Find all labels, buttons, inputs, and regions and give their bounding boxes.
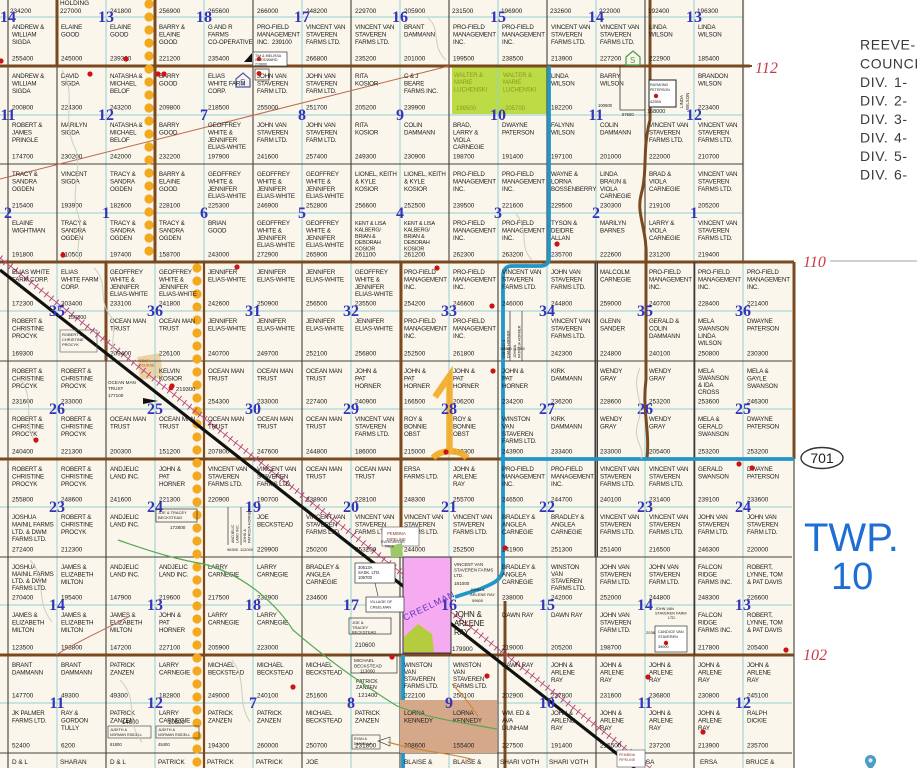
svg-text:JENNIFER: JENNIFER [355, 318, 385, 325]
svg-text:ARLENE: ARLENE [600, 669, 624, 676]
svg-text:FALCON: FALCON [698, 612, 722, 619]
svg-text:DIV.: DIV. [860, 130, 888, 146]
svg-text:205200: 205200 [698, 203, 720, 210]
svg-text:230800: 230800 [698, 693, 720, 700]
svg-text:KOSIOR: KOSIOR [355, 186, 379, 193]
svg-text:182600: 182600 [110, 203, 132, 210]
svg-text:226100: 226100 [159, 351, 181, 358]
svg-text:GERALD: GERALD [698, 466, 723, 473]
svg-text:WILSON: WILSON [551, 80, 575, 87]
svg-text:STAVEREN: STAVEREN [649, 473, 680, 480]
svg-text:PATERSON: PATERSON [747, 423, 779, 430]
svg-text:LUCHENSKI: LUCHENSKI [503, 87, 536, 93]
svg-text:251600: 251600 [306, 693, 328, 700]
svg-text:7: 7 [249, 695, 257, 712]
svg-text:BRADLEY &: BRADLEY & [551, 514, 585, 521]
svg-text:5: 5 [298, 205, 306, 222]
svg-text:CO-OPERATIVE: CO-OPERATIVE [208, 39, 253, 46]
svg-text:22: 22 [539, 499, 555, 516]
svg-text:172800: 172800 [170, 525, 186, 530]
svg-text:235200: 235200 [355, 56, 377, 63]
svg-text:DIV.: DIV. [860, 74, 888, 90]
svg-text:TRUST: TRUST [110, 423, 130, 430]
svg-text:WHITE FARM: WHITE FARM [61, 276, 98, 283]
svg-text:OCEAN MAN: OCEAN MAN [159, 416, 195, 423]
svg-text:ELIAS-WHITE: ELIAS-WHITE [306, 242, 344, 249]
svg-text:KENNEDY: KENNEDY [404, 717, 433, 724]
svg-text:FARMS LTD.: FARMS LTD. [404, 683, 439, 690]
svg-text:BONNIE: BONNIE [404, 423, 427, 430]
svg-text:GRAY: GRAY [600, 423, 616, 430]
svg-text:26: 26 [49, 401, 65, 418]
svg-text:9: 9 [396, 107, 404, 124]
svg-text:CARNEGIE: CARNEGIE [502, 529, 533, 536]
svg-text:WHITE &: WHITE & [257, 178, 283, 185]
svg-text:STAVEREN: STAVEREN [306, 521, 337, 528]
svg-text:ANDJELIC: ANDJELIC [110, 564, 139, 571]
svg-text:ELIAS-WHITE: ELIAS-WHITE [208, 193, 246, 200]
svg-text:OCEAN MAN: OCEAN MAN [306, 416, 342, 423]
svg-text:JOHN &: JOHN & [404, 368, 427, 375]
svg-text:198700: 198700 [453, 154, 475, 161]
svg-text:RITA: RITA [355, 73, 369, 80]
svg-text:4: 4 [396, 205, 404, 222]
svg-text:PRO-FIELD: PRO-FIELD [257, 24, 289, 31]
svg-text:ROBERT,: ROBERT, [747, 564, 773, 571]
svg-text:BECKSTEAD: BECKSTEAD [306, 669, 343, 676]
svg-text:HORNER: HORNER [355, 383, 382, 390]
svg-text:DIV.: DIV. [860, 93, 888, 109]
svg-text:FARMS LTD.: FARMS LTD. [698, 235, 733, 242]
svg-text:FARMS LTD.: FARMS LTD. [12, 585, 47, 592]
svg-text:BARRY: BARRY [159, 122, 179, 129]
svg-text:JAMES &: JAMES & [61, 564, 87, 571]
svg-text:222600: 222600 [600, 252, 622, 259]
svg-text:SIGDA: SIGDA [12, 39, 32, 46]
svg-text:WENDY: WENDY [649, 368, 671, 375]
svg-text:BLAISE &: BLAISE & [404, 759, 433, 766]
svg-text:LINDA: LINDA [679, 95, 684, 108]
svg-text:239100: 239100 [698, 497, 720, 504]
svg-text:KOSIOR: KOSIOR [404, 186, 428, 193]
svg-text:246300: 246300 [698, 547, 720, 554]
svg-text:TRACY &: TRACY & [110, 220, 137, 227]
svg-text:253200: 253200 [747, 449, 769, 456]
svg-text:242300: 242300 [551, 351, 573, 358]
svg-text:TRUST: TRUST [108, 386, 124, 391]
svg-text:JOHN VAN: JOHN VAN [600, 612, 630, 619]
svg-text:MANAGEMENT: MANAGEMENT [453, 227, 496, 234]
svg-text:263200: 263200 [502, 252, 524, 259]
svg-text:30: 30 [245, 401, 261, 418]
svg-text:RAYMOND: RAYMOND [650, 83, 669, 87]
svg-text:198700: 198700 [600, 645, 622, 652]
svg-text:272900: 272900 [257, 252, 279, 259]
svg-text:NATASHA &: NATASHA & [110, 122, 143, 129]
svg-text:PARK: PARK [385, 545, 395, 549]
svg-text:VINCENT VAN: VINCENT VAN [600, 24, 639, 31]
svg-text:7: 7 [200, 107, 208, 124]
svg-text:STAVEREN FARM: STAVEREN FARM [655, 612, 687, 616]
svg-text:121400: 121400 [358, 693, 377, 699]
svg-text:LYNNE, TOM: LYNNE, TOM [747, 619, 783, 626]
svg-text:SWANSON: SWANSON [698, 375, 729, 382]
svg-text:HORNER: HORNER [502, 383, 529, 390]
svg-text:265900: 265900 [306, 252, 328, 259]
svg-text:248300: 248300 [698, 595, 720, 602]
svg-text:110: 110 [803, 254, 826, 271]
svg-text:VINCENT VAN: VINCENT VAN [306, 514, 345, 521]
svg-text:AVA: AVA [502, 717, 514, 724]
svg-text:SIGDA: SIGDA [12, 88, 32, 95]
svg-text:174700: 174700 [12, 154, 34, 161]
svg-text:HORNER: HORNER [404, 383, 431, 390]
svg-text:168000: 168000 [647, 109, 665, 115]
svg-text:233000: 233000 [600, 449, 622, 456]
svg-text:106700: 106700 [358, 575, 373, 580]
svg-text:STAVEREN: STAVEREN [355, 31, 386, 38]
svg-text:STAVEREN: STAVEREN [502, 431, 533, 438]
svg-text:TWP.: TWP. [804, 516, 899, 560]
svg-text:217500: 217500 [208, 595, 230, 602]
svg-text:251700: 251700 [306, 105, 328, 112]
svg-text:266000: 266000 [257, 8, 279, 15]
svg-text:GORDON: GORDON [61, 717, 88, 724]
svg-text:16: 16 [392, 9, 408, 26]
svg-text:VAN: VAN [453, 669, 465, 676]
svg-text:RIDGE: RIDGE [698, 619, 717, 626]
svg-text:ARLENE: ARLENE [454, 619, 484, 628]
svg-text:SWANSON: SWANSON [698, 431, 729, 438]
svg-text:GRAY: GRAY [649, 375, 665, 382]
svg-text:SHARI VOTH: SHARI VOTH [500, 759, 539, 766]
svg-text:FARMS LTD.: FARMS LTD. [12, 717, 47, 724]
svg-text:230300: 230300 [747, 351, 769, 358]
svg-text:PAT: PAT [355, 375, 366, 382]
svg-text:FARMS LTD.: FARMS LTD. [453, 529, 488, 536]
svg-text:ARLENE: ARLENE [649, 669, 673, 676]
svg-text:WHITE &: WHITE & [355, 276, 381, 283]
svg-text:ARLENE: ARLENE [649, 717, 673, 724]
svg-text:JOHN &: JOHN & [159, 466, 182, 473]
svg-text:CARNEGIE: CARNEGIE [208, 619, 239, 626]
svg-text:LTD.: LTD. [454, 573, 463, 578]
svg-text:DAMMANN: DAMMANN [551, 375, 582, 382]
svg-text:JOHN &: JOHN & [453, 466, 476, 473]
svg-text:ELIZABETH: ELIZABETH [110, 619, 142, 626]
svg-text:SIGDA: SIGDA [61, 178, 81, 185]
svg-text:DANIELLA: DANIELLA [354, 742, 372, 746]
svg-text:DAMMANN: DAMMANN [551, 423, 582, 430]
svg-text:OCEAN MAN: OCEAN MAN [257, 368, 293, 375]
svg-text:OCEAN MAN: OCEAN MAN [306, 466, 342, 473]
svg-text:GRAY: GRAY [649, 423, 665, 430]
svg-text:JENNIFER: JENNIFER [355, 284, 385, 291]
svg-text:VINCENT VAN: VINCENT VAN [649, 466, 688, 473]
svg-text:249000: 249000 [208, 693, 230, 700]
svg-text:CARNEGIE: CARNEGIE [159, 669, 190, 676]
svg-text:JOHN &: JOHN & [600, 710, 623, 717]
svg-text:VINCENT VAN: VINCENT VAN [306, 24, 345, 31]
svg-text:WHITE &: WHITE & [208, 178, 234, 185]
svg-text:BRIAN &: BRIAN & [404, 234, 425, 240]
svg-text:KALBERG/: KALBERG/ [404, 227, 430, 233]
svg-text:252800: 252800 [306, 203, 328, 210]
svg-text:VINCENT VAN: VINCENT VAN [600, 466, 639, 473]
svg-text:BRANDON: BRANDON [698, 73, 728, 80]
svg-text:STAVEREN: STAVEREN [698, 227, 729, 234]
svg-text:SANDER: SANDER [600, 325, 626, 332]
svg-text:GRAY: GRAY [600, 375, 616, 382]
svg-text:MANAGEMENT: MANAGEMENT [404, 325, 447, 332]
svg-text:STAVEREN: STAVEREN [257, 473, 288, 480]
svg-text:SANDRA: SANDRA [61, 227, 87, 234]
svg-text:219100: 219100 [649, 203, 671, 210]
svg-text:202900: 202900 [502, 693, 524, 700]
svg-text:257400: 257400 [306, 154, 328, 161]
svg-text:151200: 151200 [159, 449, 181, 456]
svg-text:HORNER: HORNER [159, 481, 186, 488]
svg-text:STAVEREN: STAVEREN [257, 80, 288, 87]
svg-text:228400: 228400 [698, 301, 720, 308]
svg-text:186000: 186000 [355, 449, 377, 456]
svg-text:205400: 205400 [747, 645, 769, 652]
svg-text:GEOFFREY: GEOFFREY [110, 269, 143, 276]
svg-text:INC.: INC. [453, 284, 465, 291]
svg-text:TRUST: TRUST [257, 375, 277, 382]
svg-text:102: 102 [803, 647, 827, 664]
svg-text:DAMMANN: DAMMANN [404, 31, 435, 38]
svg-text:KOSIOR: KOSIOR [159, 375, 183, 382]
svg-text:BRIAN: BRIAN [208, 220, 226, 227]
svg-text:17: 17 [343, 597, 359, 614]
svg-text:WHITE &: WHITE & [159, 276, 185, 283]
svg-text:255400: 255400 [12, 56, 34, 63]
svg-text:KIRK: KIRK [551, 368, 566, 375]
svg-text:ZANZEN: ZANZEN [208, 717, 232, 724]
svg-text:PRO-FIELD: PRO-FIELD [698, 269, 730, 276]
svg-text:TRUST: TRUST [306, 375, 326, 382]
svg-text:FARMS: FARMS [208, 31, 229, 38]
svg-text:WHITE &: WHITE & [306, 178, 332, 185]
svg-text:272400: 272400 [12, 547, 34, 554]
svg-text:262300: 262300 [453, 252, 475, 259]
svg-text:GOOD: GOOD [159, 80, 178, 87]
svg-text:240700: 240700 [208, 351, 230, 358]
svg-text:PRO-FIELD: PRO-FIELD [502, 220, 534, 227]
svg-text:BRUCE &: BRUCE & [746, 759, 775, 766]
svg-text:ROY &: ROY & [404, 416, 423, 423]
svg-text:INC. 239100: INC. 239100 [257, 39, 292, 46]
svg-text:ROBERT &: ROBERT & [12, 318, 43, 325]
svg-text:191400: 191400 [502, 154, 524, 161]
svg-text:PRINGLE: PRINGLE [12, 137, 38, 144]
svg-text:INC.: INC. [453, 333, 465, 340]
svg-text:ELIAS WHITE: ELIAS WHITE [12, 269, 50, 276]
svg-text:NATASHA &: NATASHA & [110, 73, 143, 80]
svg-text:DAMMANN: DAMMANN [61, 669, 92, 676]
svg-text:BOSSENBERRY: BOSSENBERRY [551, 186, 596, 193]
svg-text:61800: 61800 [110, 742, 122, 747]
svg-text:256800: 256800 [355, 351, 377, 358]
svg-text:WHITE &: WHITE & [257, 227, 283, 234]
svg-text:256500: 256500 [306, 301, 328, 308]
svg-text:ELAINE: ELAINE [159, 31, 180, 38]
svg-text:PATRICK: PATRICK [207, 759, 234, 766]
svg-text:205700: 205700 [505, 106, 526, 112]
svg-text:VINCENT VAN: VINCENT VAN [649, 514, 688, 521]
svg-text:221300: 221300 [61, 449, 83, 456]
svg-text:INC.: INC. [502, 39, 514, 46]
svg-text:KELVIN: KELVIN [159, 368, 180, 375]
svg-text:ELIAS: ELIAS [61, 269, 78, 276]
svg-text:215500: 215500 [600, 743, 622, 750]
svg-text:13: 13 [686, 9, 702, 26]
svg-text:240400: 240400 [12, 449, 34, 456]
svg-text:250100: 250100 [453, 693, 475, 700]
svg-text:6: 6 [200, 205, 208, 222]
svg-text:11: 11 [588, 107, 603, 124]
svg-text:PRO-FIELD: PRO-FIELD [502, 171, 534, 178]
svg-text:SWANSON: SWANSON [698, 325, 729, 332]
svg-text:GEOFFREY: GEOFFREY [257, 220, 290, 227]
svg-text:INC.: INC. [698, 284, 710, 291]
svg-text:JENNIFER: JENNIFER [257, 186, 287, 193]
svg-text:CARNEGIE: CARNEGIE [600, 193, 631, 200]
svg-text:STAVEREN FARMS: STAVEREN FARMS [454, 568, 493, 573]
svg-text:FARM LTD.: FARM LTD. [600, 579, 631, 586]
svg-text:CARNEGIE: CARNEGIE [257, 571, 288, 578]
svg-text:RAY: RAY [600, 725, 612, 732]
svg-text:VAN: VAN [551, 571, 563, 578]
svg-text:ELAINE: ELAINE [61, 24, 82, 31]
svg-text:33: 33 [441, 303, 457, 320]
svg-text:18: 18 [245, 597, 261, 614]
svg-text:HOLDING: HOLDING [60, 0, 89, 7]
svg-text:FARM LTD.: FARM LTD. [306, 137, 337, 144]
svg-text:177100: 177100 [108, 393, 124, 398]
svg-text:221200: 221200 [159, 56, 181, 63]
svg-text:5-: 5- [894, 148, 908, 164]
svg-text:TRUST: TRUST [306, 473, 326, 480]
svg-text:STAVEREN: STAVEREN [600, 473, 631, 480]
svg-text:255000: 255000 [257, 105, 279, 112]
svg-text:13: 13 [147, 597, 163, 614]
svg-text:INC.: INC. [453, 39, 465, 46]
svg-text:STAVEREN: STAVEREN [551, 325, 582, 332]
svg-text:DUNHAM: DUNHAM [502, 725, 528, 732]
svg-text:241600: 241600 [110, 497, 132, 504]
svg-text:ROBERT &: ROBERT & [61, 416, 92, 423]
svg-text:192400: 192400 [648, 8, 670, 15]
svg-text:JOHN &: JOHN & [698, 710, 721, 717]
svg-text:CHRISTINE: CHRISTINE [12, 423, 44, 430]
svg-text:34: 34 [539, 303, 555, 320]
svg-text:JK PALMER: JK PALMER [12, 710, 45, 717]
svg-text:JOHN &: JOHN & [698, 662, 721, 669]
svg-text:LARRY &: LARRY & [453, 129, 479, 136]
svg-text:BARRY &: BARRY & [159, 171, 186, 178]
svg-text:219300: 219300 [176, 387, 195, 393]
svg-text:TULLY: TULLY [61, 725, 79, 732]
svg-text:113600: 113600 [360, 669, 375, 674]
svg-text:MELA &: MELA & [698, 416, 720, 423]
svg-text:FARMS LTD.: FARMS LTD. [12, 536, 47, 543]
svg-text:251300: 251300 [551, 547, 573, 554]
svg-text:TRACY &: TRACY & [159, 220, 186, 227]
svg-text:182200: 182200 [551, 105, 573, 112]
svg-text:PATRICIA HORNER: PATRICIA HORNER [518, 325, 522, 358]
svg-text:MILTON: MILTON [12, 627, 34, 634]
svg-text:FARMS INC.: FARMS INC. [404, 88, 438, 95]
svg-text:DAMMANN: DAMMANN [12, 669, 43, 676]
svg-text:BRIAN &: BRIAN & [355, 234, 376, 240]
svg-text:10: 10 [490, 107, 506, 124]
svg-text:STAVEREN: STAVEREN [355, 521, 386, 528]
svg-text:JOHN &: JOHN & [243, 529, 247, 543]
svg-text:13: 13 [98, 9, 114, 26]
svg-text:GOOD: GOOD [110, 31, 129, 38]
svg-text:SANDRA: SANDRA [110, 178, 136, 185]
svg-text:MICHAEL: MICHAEL [257, 662, 284, 669]
svg-text:239900: 239900 [404, 105, 426, 112]
svg-text:WILSON: WILSON [551, 129, 575, 136]
svg-text:DIV.: DIV. [860, 148, 888, 164]
svg-text:LTD. & DWM: LTD. & DWM [12, 578, 46, 585]
svg-text:VINCENT VAN: VINCENT VAN [208, 466, 247, 473]
svg-text:VIOLA: VIOLA [649, 178, 668, 185]
svg-text:TRACY &: TRACY & [12, 171, 39, 178]
svg-text:ROBERT &: ROBERT & [61, 466, 92, 473]
svg-text:WILSON: WILSON [685, 93, 690, 110]
svg-text:217800: 217800 [698, 645, 720, 652]
svg-text:D & L: D & L [12, 759, 28, 766]
svg-text:SANDRA: SANDRA [110, 227, 136, 234]
svg-text:JOSHUA: JOSHUA [12, 514, 37, 521]
svg-text:SANDRA: SANDRA [159, 227, 185, 234]
svg-text:STAVEREN: STAVEREN [306, 31, 337, 38]
svg-text:11: 11 [637, 695, 652, 712]
svg-text:WILLIAM: WILLIAM [12, 31, 36, 38]
svg-text:GOOD: GOOD [61, 31, 80, 38]
svg-text:MICHAEL: MICHAEL [110, 80, 137, 87]
svg-text:BRADLEY &: BRADLEY & [502, 514, 536, 521]
svg-text:OBST: OBST [453, 431, 470, 438]
svg-text:227500: 227500 [502, 743, 524, 750]
svg-text:MELA &: MELA & [747, 368, 769, 375]
svg-text:254200: 254200 [404, 301, 426, 308]
svg-text:CARNEGIE: CARNEGIE [649, 186, 680, 193]
svg-text:14: 14 [0, 9, 16, 26]
svg-text:JOHN &: JOHN & [649, 662, 672, 669]
svg-text:DAMMANN: DAMMANN [404, 129, 435, 136]
svg-text:227400: 227400 [306, 399, 328, 406]
svg-text:35: 35 [49, 303, 65, 320]
svg-text:23: 23 [637, 499, 653, 516]
svg-text:MICHAEL: MICHAEL [306, 662, 333, 669]
svg-text:TRUST: TRUST [306, 423, 326, 430]
svg-text:197100: 197100 [551, 154, 573, 161]
svg-text:VINCENT VAN: VINCENT VAN [551, 318, 590, 325]
svg-text:WALTER &: WALTER & [454, 73, 483, 79]
svg-text:28: 28 [441, 401, 457, 418]
svg-text:1: 1 [102, 205, 110, 222]
svg-text:BECKSTEAD: BECKSTEAD [306, 717, 343, 724]
svg-text:199500: 199500 [456, 106, 477, 112]
svg-text:STAVEREN: STAVEREN [404, 676, 435, 683]
svg-text:231600: 231600 [600, 693, 622, 700]
svg-text:42500: 42500 [650, 99, 662, 104]
